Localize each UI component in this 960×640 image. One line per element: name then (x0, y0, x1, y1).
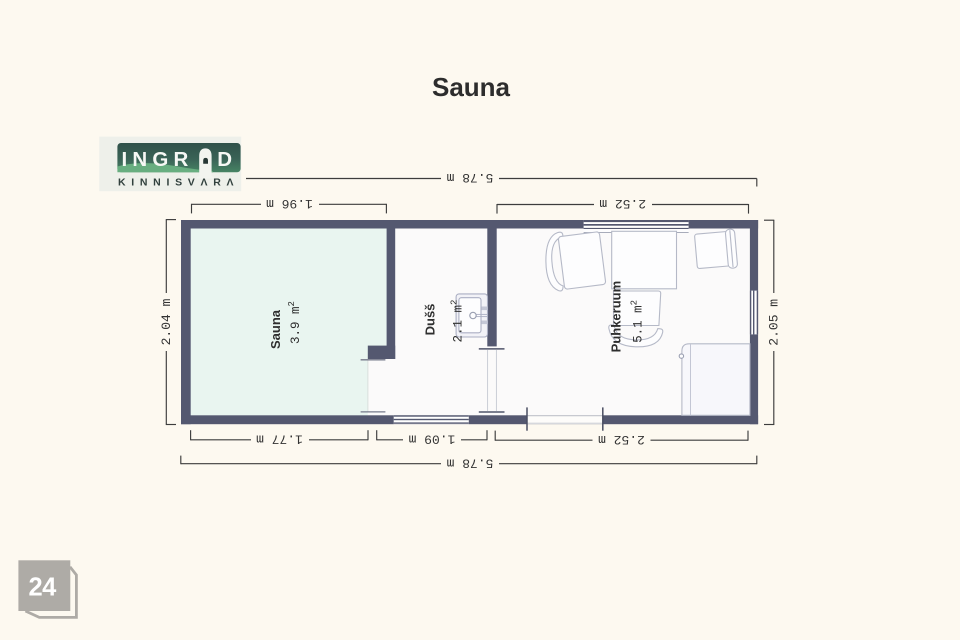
svg-text:Sauna: Sauna (268, 309, 283, 349)
svg-text:2.04 m: 2.04 m (159, 298, 174, 345)
svg-text:KINNISVΛRΛ: KINNISVΛRΛ (118, 176, 239, 188)
svg-text:5.1 m2: 5.1 m2 (630, 300, 646, 343)
svg-text:2.1 m2: 2.1 m2 (450, 300, 466, 343)
svg-text:5.78 m: 5.78 m (446, 170, 493, 185)
svg-text:1.09 m: 1.09 m (408, 431, 455, 446)
svg-text:1.96 m: 1.96 m (266, 196, 313, 211)
svg-text:24: 24 (29, 573, 58, 601)
svg-text:2.52 m: 2.52 m (599, 196, 646, 211)
svg-text:5.78 m: 5.78 m (446, 455, 493, 470)
svg-text:Puhkeruum: Puhkeruum (608, 281, 623, 353)
svg-text:2.52 m: 2.52 m (598, 432, 645, 447)
svg-text:1.77 m: 1.77 m (256, 431, 303, 446)
svg-text:INGR: INGR (122, 148, 194, 171)
svg-text:3.9 m2: 3.9 m2 (287, 301, 303, 344)
svg-text:Dušš: Dušš (423, 304, 438, 336)
svg-text:Sauna: Sauna (432, 72, 511, 102)
svg-text:D: D (217, 148, 232, 171)
svg-text:2.05 m: 2.05 m (767, 299, 782, 346)
